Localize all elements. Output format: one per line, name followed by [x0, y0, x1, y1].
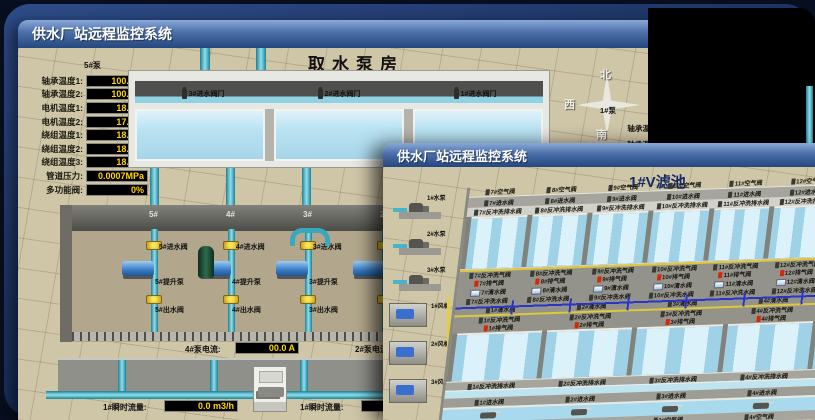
- flow-meter-icon[interactable]: [253, 366, 287, 412]
- pump-house-titlebar[interactable]: 供水厂站远程监控系统: [18, 20, 662, 48]
- filter-cell: [768, 204, 815, 258]
- reading-label: 轴承温度2:: [22, 88, 86, 100]
- bay-number: 3#: [303, 210, 312, 219]
- reading-row: 管道压力: 0.0007MPa: [22, 169, 154, 183]
- hall-wall: [60, 205, 72, 342]
- outlet-valve-label: 5#出水阀: [155, 305, 184, 315]
- filter-cell: [722, 321, 813, 372]
- flow-label: 1#瞬时流量:: [103, 402, 147, 413]
- pipe-gallery: 7#反冲洗气阀8#反冲洗气阀9#反冲洗气阀10#反冲洗气阀11#反冲洗气阀12#…: [452, 256, 815, 333]
- flow-display: 0.0 m3/h: [164, 400, 238, 412]
- lift-pump-label: 3#提升泵: [309, 277, 338, 287]
- outlet-valve-label: 4#出水阀: [232, 305, 261, 315]
- reading-label: 轴承温度1:: [22, 75, 86, 87]
- reading-label: 电机温度1:: [22, 102, 86, 114]
- filter-cell: [465, 215, 527, 269]
- window-filter-pool: 供水厂站远程监控系统 1#V滤池 1#水泵 2#水泵: [383, 143, 815, 420]
- filter-cell: [632, 324, 723, 375]
- wash-pump[interactable]: 1#水泵: [393, 191, 457, 219]
- intake-valve[interactable]: 1#进水阀门: [407, 87, 543, 101]
- lift-pump-icon[interactable]: [122, 261, 154, 276]
- reading-value-display: 0.0007MPa: [86, 170, 148, 182]
- wash-pumps: 1#水泵 2#水泵 3#水泵: [383, 191, 465, 291]
- inlet-valve-label: 4#进水阀: [236, 242, 265, 252]
- pump-bays: 5# 5#进水阀 5#提升泵 5#出水阀 4# 4#进水阀: [115, 205, 423, 342]
- pump1-label: 1#泵: [600, 106, 616, 115]
- scada-desktop: 供水厂站远程监控系统 取水泵房 5#泵 轴承温度1: 100.0℃ 轴承温度2:…: [0, 0, 815, 420]
- channel-pump-icon: [805, 394, 815, 410]
- connector-pipe: [226, 168, 235, 208]
- reading-label: 绕组温度3:: [22, 156, 86, 168]
- reading-value-display: 0%: [86, 184, 148, 196]
- outlet-valve-label: 3#出水阀: [309, 305, 338, 315]
- intake-valve-row: 3#进水阀门2#进水阀门1#进水阀门: [135, 87, 543, 101]
- branch-pipe: [118, 360, 126, 394]
- filter-cell: [542, 327, 633, 378]
- intake-valve[interactable]: 2#进水阀门: [271, 87, 407, 101]
- filter-pool: 7#空气阀8#空气阀9#空气阀10#空气阀11#空气阀12#空气阀 7#进水阀8…: [437, 175, 815, 420]
- filter-pool-canvas: 1#V滤池 1#水泵 2#水泵: [383, 167, 815, 420]
- inlet-valve-label: 5#进水阀: [159, 242, 188, 252]
- arch-pipe: [290, 228, 330, 246]
- air-valve[interactable]: 12#空气阀: [776, 175, 815, 186]
- wash-pump-label: 2#水泵: [427, 229, 446, 238]
- flow-meter-base: [254, 402, 286, 411]
- intake-basin: [135, 109, 265, 161]
- reading-label: 多功能阀:: [22, 184, 86, 196]
- wash-pump-label: 3#水泵: [427, 265, 446, 274]
- current-label: 4#泵电流:: [185, 344, 221, 355]
- flow-meter-window: [259, 371, 283, 383]
- reading-label: 绕组温度1:: [22, 129, 86, 141]
- pump-bay: 3# 3#进水阀 3#提升泵 3#出水阀: [269, 205, 346, 342]
- filter-cell: [647, 209, 709, 263]
- blower-motor-icon: [396, 385, 414, 395]
- bay-number: 5#: [149, 210, 158, 219]
- outlet-valve-icon[interactable]: [146, 295, 162, 304]
- reading-label: 电机温度2:: [22, 116, 86, 128]
- filter-cell: [526, 213, 588, 267]
- pump-platform: [399, 212, 441, 219]
- lift-pump-label: 5#提升泵: [155, 277, 184, 287]
- wash-pump[interactable]: 2#水泵: [393, 227, 457, 255]
- channel-pump-icon: [441, 407, 534, 420]
- lift-pump-label: 4#提升泵: [232, 277, 261, 287]
- reading-row: 多功能阀: 0%: [22, 183, 154, 197]
- compass-north: 北: [600, 66, 611, 82]
- wash-pump-label: 1#水泵: [427, 193, 446, 202]
- pump-platform: [399, 284, 441, 291]
- bay-number: 4#: [226, 210, 235, 219]
- reading-label: 绕组温度2:: [22, 143, 86, 155]
- edge-pipe: [806, 86, 813, 148]
- filter-pool-window-title: 供水厂站远程监控系统: [397, 146, 527, 165]
- filter-cell: [586, 211, 648, 265]
- intake-valve[interactable]: 3#进水阀门: [135, 87, 271, 101]
- filter-pool-titlebar[interactable]: 供水厂站远程监控系统: [383, 143, 815, 167]
- pump-platform: [399, 248, 441, 255]
- wash-pump[interactable]: 3#水泵: [393, 263, 457, 291]
- lift-pump-icon[interactable]: [276, 261, 308, 276]
- desktop-black-area: [648, 8, 815, 148]
- branch-pipe: [210, 360, 218, 394]
- outlet-valve-icon[interactable]: [300, 295, 316, 304]
- outlet-valve-icon[interactable]: [223, 295, 239, 304]
- lift-pump-icon[interactable]: [353, 261, 385, 276]
- filter-cell: [708, 206, 770, 260]
- connector-pipe: [302, 168, 311, 208]
- oil-tank-icon: [198, 246, 214, 278]
- pump-house-window-title: 供水厂站远程监控系统: [32, 24, 172, 44]
- blower-motor-icon: [396, 309, 414, 319]
- blower-motor-icon: [396, 347, 414, 357]
- connector-pipe: [150, 168, 159, 208]
- reading-label: 管道压力:: [22, 170, 86, 182]
- flow-label: 1#瞬时流量:: [300, 402, 344, 413]
- filter-cell: [451, 330, 542, 381]
- flow-meter-glyph: [258, 387, 284, 397]
- branch-pipe: [300, 360, 308, 394]
- current-display: 00.0 A: [235, 342, 299, 354]
- pump-bay: 5# 5#进水阀 5#提升泵 5#出水阀: [115, 205, 192, 342]
